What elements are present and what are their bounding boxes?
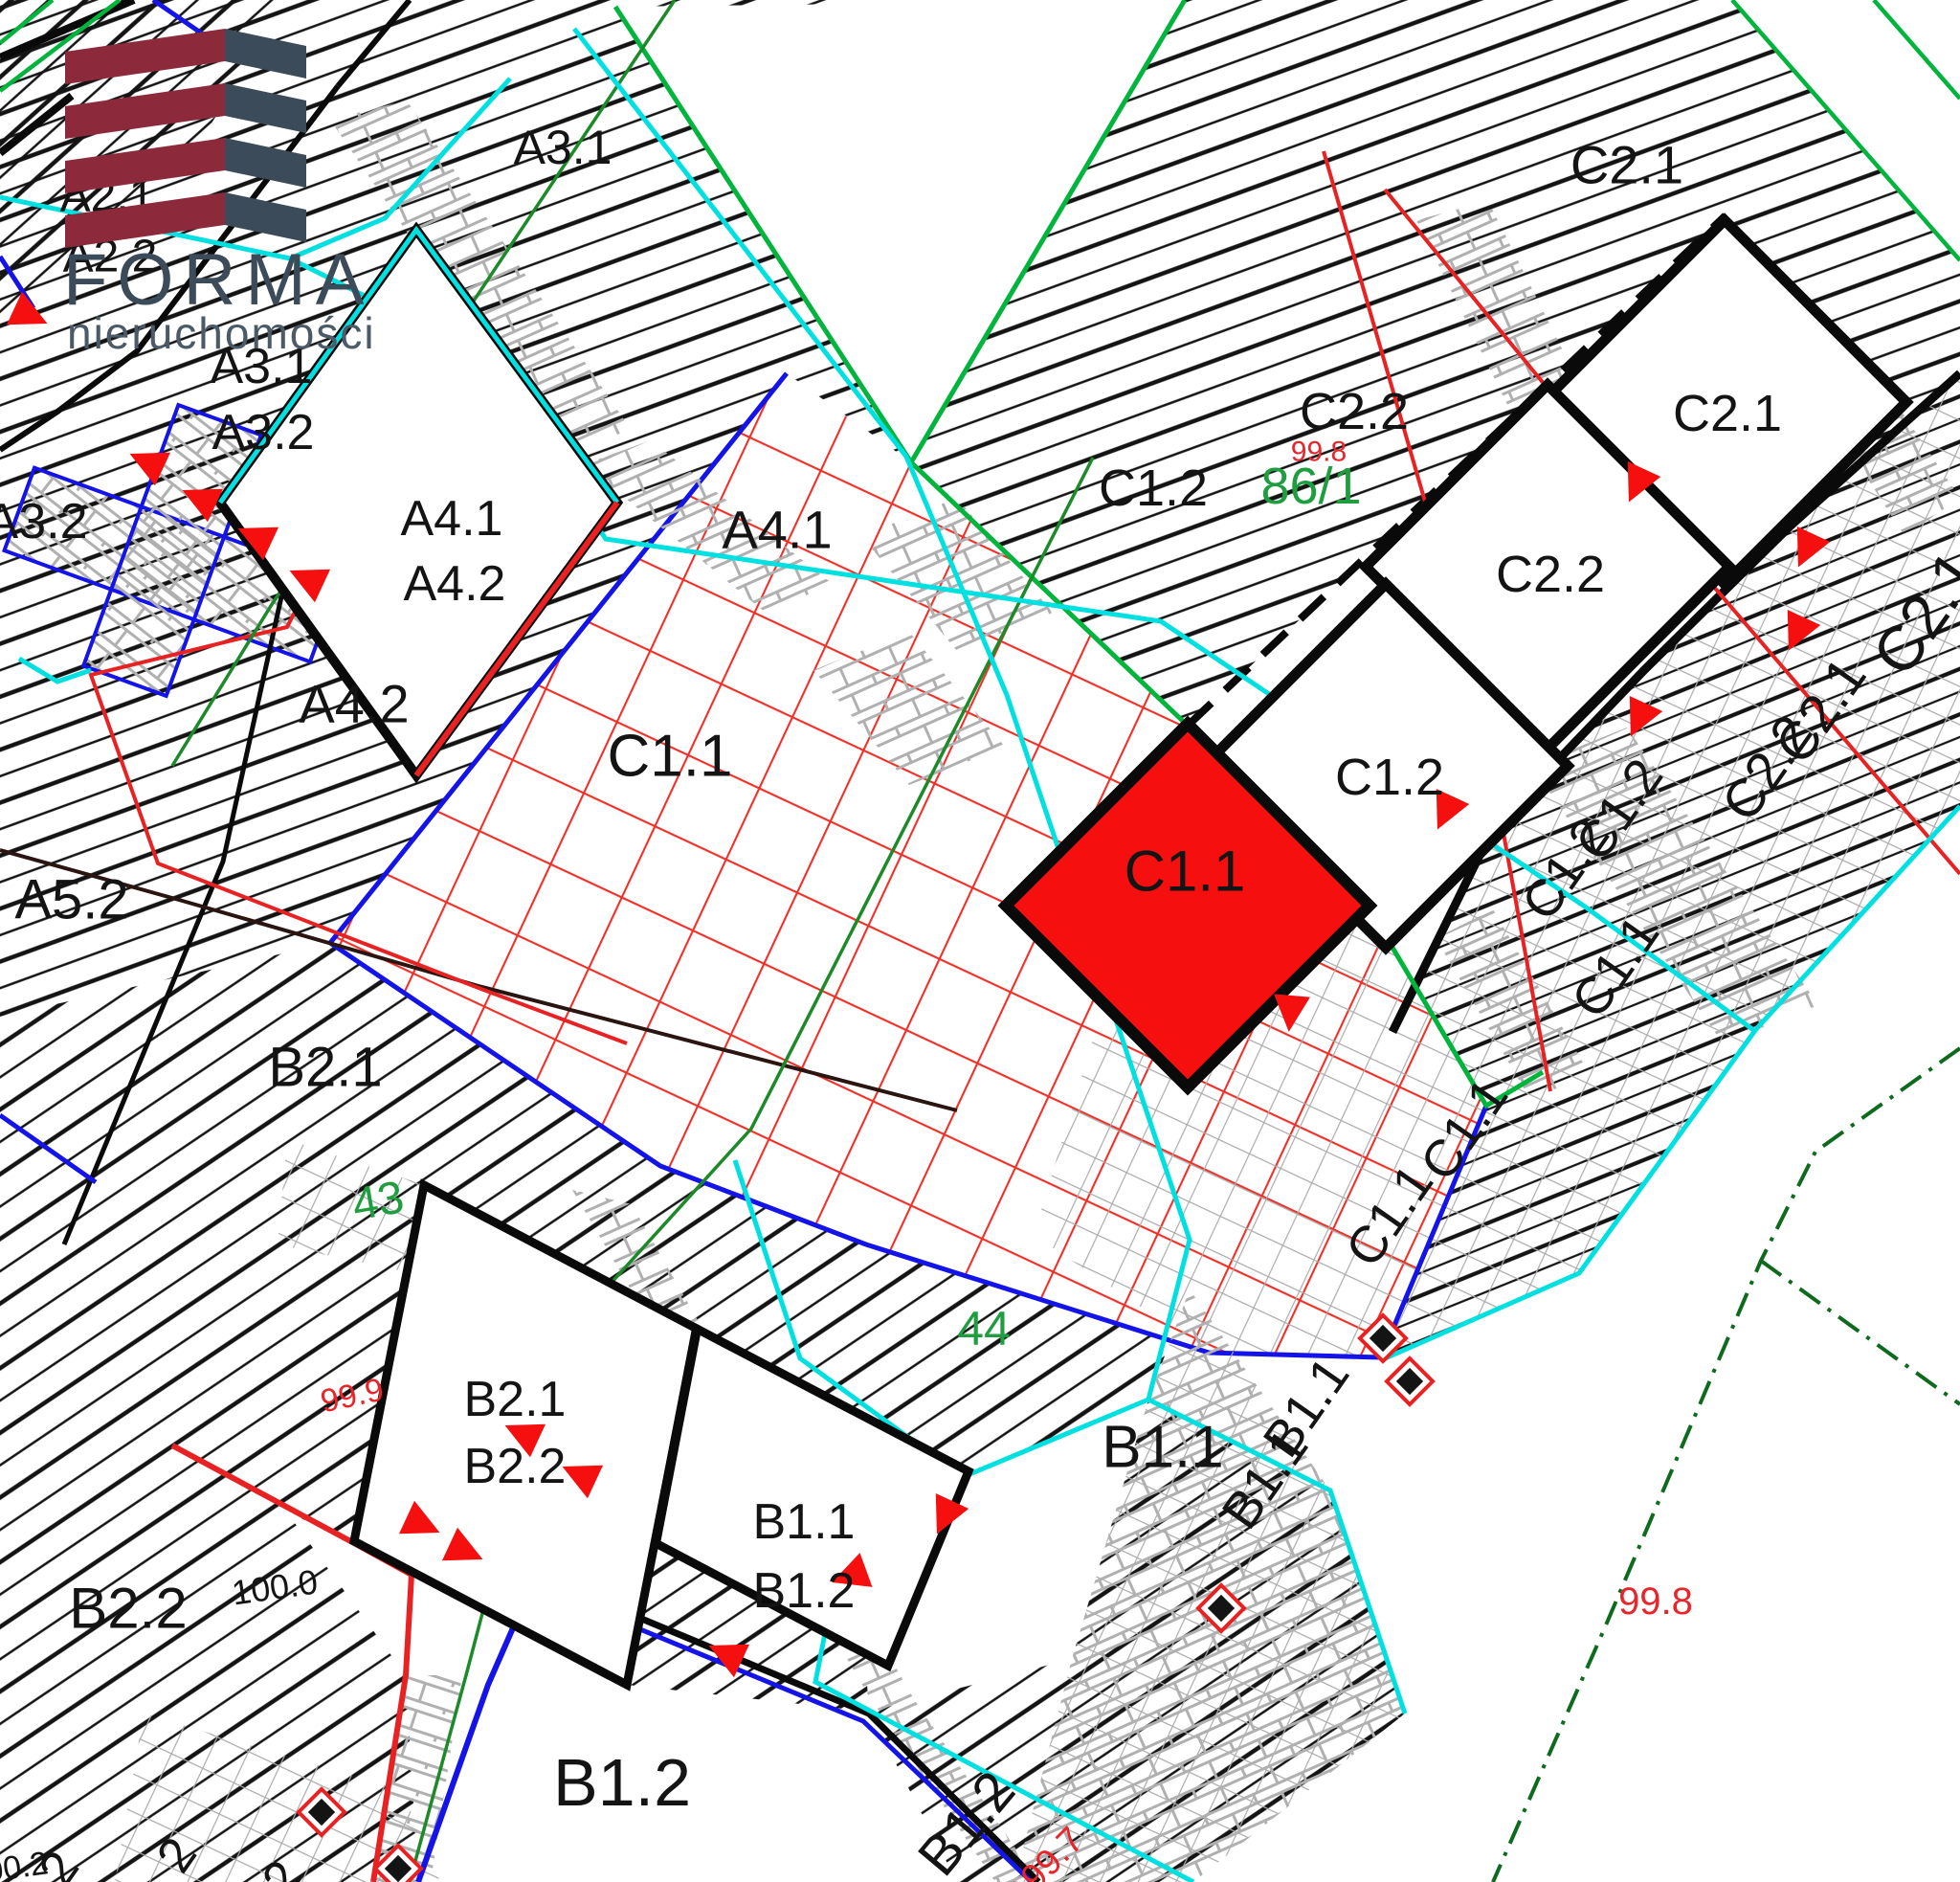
elevation-998-top: 99.8 xyxy=(1291,437,1347,468)
building-label-a42: A4.2 xyxy=(404,556,506,612)
area-label-b11: B1.1 xyxy=(1102,1415,1224,1481)
area-label-c22: C2.2 xyxy=(1300,383,1409,440)
site-plan-drawing: A2.1 A2.2 A3.1 A3.1 A3.2 A3.2 A4.1 A4.1 … xyxy=(0,0,1960,1882)
area-label-b21: B2.1 xyxy=(268,1037,382,1099)
building-label-b11: B1.1 xyxy=(753,1494,856,1550)
area-label-b22: B2.2 xyxy=(69,1577,187,1641)
parcel-number-43: 43 xyxy=(348,1172,408,1230)
area-label-c12: C1.2 xyxy=(1099,459,1208,517)
building-label-c22: C2.2 xyxy=(1496,546,1605,603)
area-label-a41: A4.1 xyxy=(722,500,832,560)
logo-subtitle: nieruchomości xyxy=(67,308,376,358)
site-plan-canvas: A2.1 A2.2 A3.1 A3.1 A3.2 A3.2 A4.1 A4.1 … xyxy=(0,0,1960,1882)
area-label-b12: B1.2 xyxy=(553,1745,691,1820)
area-label-a31-top: A3.1 xyxy=(514,121,612,174)
elevation-998-bottom-right: 99.8 xyxy=(1618,1580,1693,1623)
area-label-c21: C2.1 xyxy=(1570,135,1683,195)
area-label-a52: A5.2 xyxy=(14,869,128,931)
parcel-number-44: 44 xyxy=(957,1302,1011,1355)
area-label-a32-left: A3.2 xyxy=(0,494,87,549)
building-label-c11: C1.1 xyxy=(1125,840,1246,904)
building-label-a41: A4.1 xyxy=(401,491,503,547)
area-label-c11: C1.1 xyxy=(608,724,733,790)
building-label-c12: C1.2 xyxy=(1335,749,1444,806)
area-label-a32-mid: A3.2 xyxy=(212,405,315,460)
building-label-b22: B2.2 xyxy=(464,1439,567,1494)
building-label-b12: B1.2 xyxy=(753,1563,856,1619)
area-label-a42: A4.2 xyxy=(299,674,409,734)
building-label-b21: B2.1 xyxy=(464,1372,567,1427)
building-label-c21: C2.1 xyxy=(1673,385,1782,442)
